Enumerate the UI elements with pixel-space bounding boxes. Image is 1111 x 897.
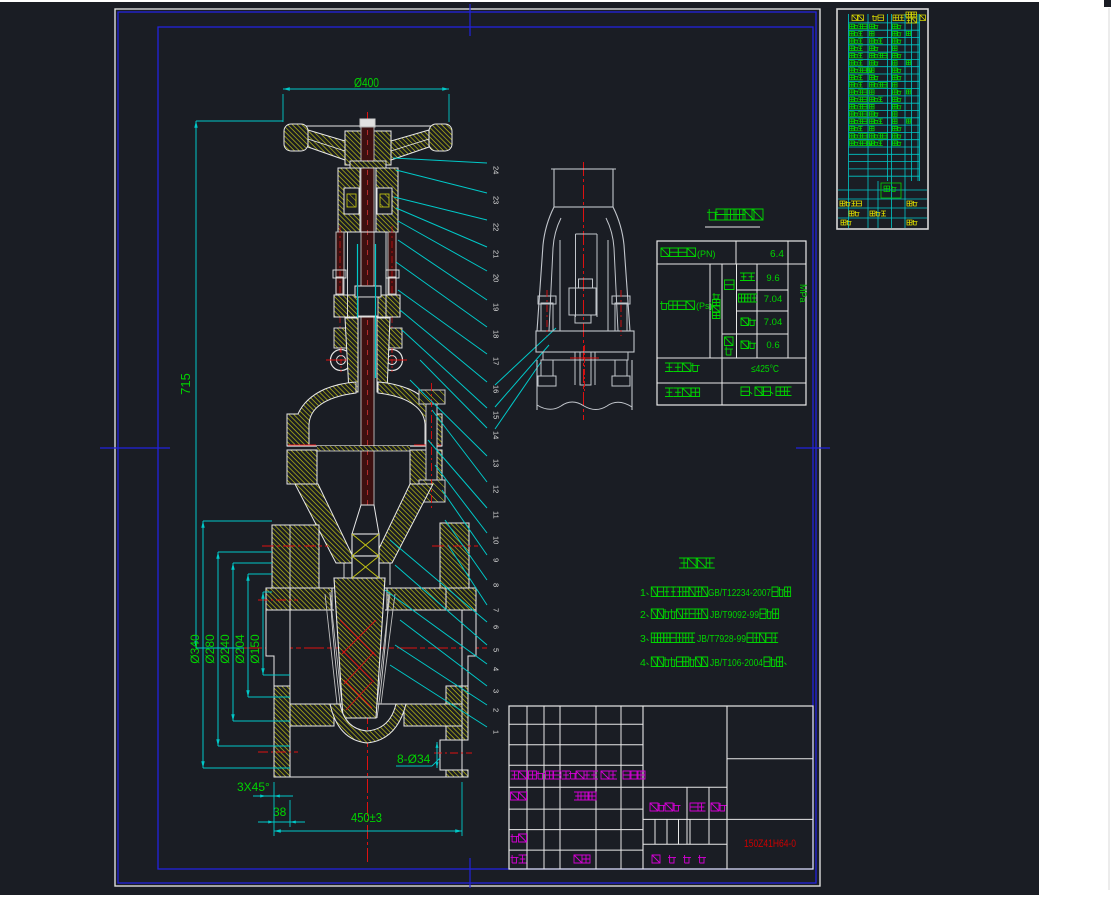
svg-text:Ø340: Ø340 (188, 634, 202, 664)
svg-text:6.4: 6.4 (770, 249, 784, 260)
svg-text:11: 11 (492, 511, 501, 519)
svg-text:3: 3 (640, 633, 646, 645)
svg-text:0.6: 0.6 (766, 340, 779, 351)
svg-text:20: 20 (492, 274, 501, 282)
svg-text:(PN): (PN) (697, 249, 716, 259)
svg-text:22: 22 (492, 223, 501, 231)
svg-text:8: 8 (492, 583, 501, 587)
svg-text:150Z41H64-0: 150Z41H64-0 (744, 838, 796, 850)
svg-text:3X45°: 3X45° (237, 780, 270, 794)
svg-text:14: 14 (492, 431, 501, 439)
svg-text:2: 2 (640, 609, 646, 621)
svg-text:23: 23 (492, 196, 501, 204)
svg-text:19: 19 (492, 303, 501, 311)
svg-text:≤425°C: ≤425°C (751, 364, 779, 375)
svg-text:18: 18 (492, 330, 501, 338)
svg-text:(Ps): (Ps) (696, 301, 713, 311)
svg-text:10: 10 (492, 536, 501, 544)
svg-text:7: 7 (492, 608, 501, 612)
svg-text:450±3: 450±3 (351, 810, 382, 825)
svg-text:GB/T12234-2007: GB/T12234-2007 (708, 588, 771, 599)
svg-text:13: 13 (492, 459, 501, 467)
svg-text:9: 9 (492, 558, 501, 562)
svg-text:38: 38 (273, 805, 287, 819)
svg-text:6: 6 (492, 625, 501, 629)
svg-text:8-Ø34: 8-Ø34 (397, 752, 431, 766)
svg-text:Ø280: Ø280 (203, 634, 217, 664)
svg-text:9.6: 9.6 (766, 273, 779, 284)
svg-text:21: 21 (492, 250, 501, 258)
svg-text:1: 1 (640, 587, 646, 599)
svg-text:2: 2 (492, 708, 501, 712)
svg-text:Ø400: Ø400 (354, 75, 379, 90)
svg-text:7.04: 7.04 (764, 317, 783, 328)
svg-text:4: 4 (492, 667, 501, 671)
svg-text:17: 17 (492, 357, 501, 365)
svg-text:JB/T9092-99: JB/T9092-99 (710, 610, 759, 621)
svg-text:MPa: MPa (798, 284, 808, 303)
svg-text:JB/T106-2004: JB/T106-2004 (710, 658, 763, 669)
svg-text:4: 4 (640, 657, 646, 669)
svg-text:715: 715 (178, 373, 193, 395)
svg-text:12: 12 (492, 485, 501, 493)
svg-text:7.04: 7.04 (764, 294, 783, 305)
svg-text:24: 24 (492, 166, 501, 174)
svg-text:16: 16 (492, 385, 501, 393)
svg-text:JB/T7928-99: JB/T7928-99 (697, 634, 746, 645)
svg-text:15: 15 (492, 411, 501, 419)
svg-text:Ø150: Ø150 (248, 634, 262, 664)
svg-text:5: 5 (492, 648, 501, 652)
svg-text:1: 1 (492, 730, 501, 734)
svg-text:Ø240: Ø240 (218, 634, 232, 664)
svg-text:Ø204: Ø204 (233, 634, 247, 664)
svg-text:3: 3 (492, 689, 501, 693)
